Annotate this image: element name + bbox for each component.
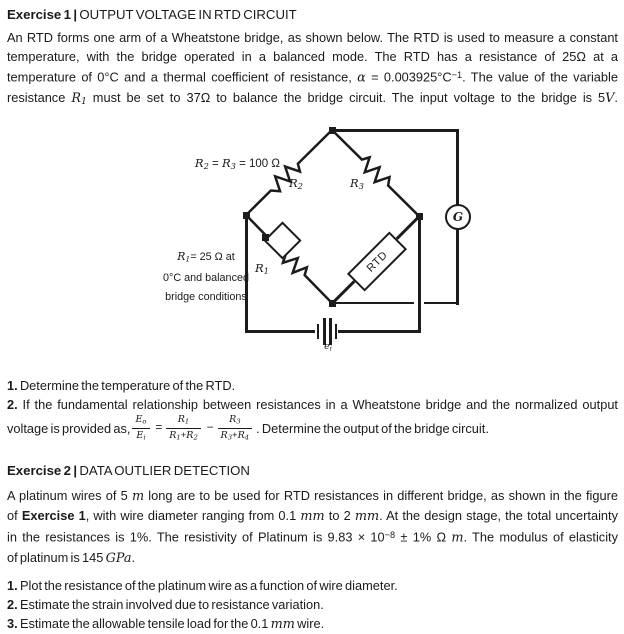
text-run: −8 <box>385 530 396 540</box>
junction-dot-left <box>243 212 250 219</box>
text-run: m <box>451 531 463 546</box>
text-run: A platinum wires of 5 <box>7 488 132 503</box>
wire-bottom-to-galvanometer-left <box>332 302 414 305</box>
text-run: . <box>132 550 136 565</box>
text-run: 2. <box>7 597 18 612</box>
text-run: GPa <box>106 551 132 566</box>
text-line: An RTD forms one arm of a Wheatstone bri… <box>7 28 618 47</box>
text-line: of Exercise 1, with wire diameter rangin… <box>7 506 618 526</box>
text-run: 4 <box>245 433 249 441</box>
text-run: OUTPUT VOLTAGE IN RTD CIRCUIT <box>79 7 296 22</box>
text-run: Determine the temperature of the RTD. <box>18 378 235 393</box>
label-battery-ei: ei <box>317 341 339 353</box>
formula-prefix-text: voltage is provided as, <box>7 419 130 438</box>
text-run: R <box>350 176 359 190</box>
text-line: 2. Estimate the strain involved due to r… <box>7 595 618 614</box>
label-r3: R3 <box>350 176 364 191</box>
equals-sign: = <box>156 419 163 438</box>
text-run: mm <box>300 509 324 524</box>
fraction-r3: R3 R3+R4 <box>218 414 253 441</box>
resistor-zigzag-icon <box>239 123 339 222</box>
formula-suffix-text: . Determine the output of the bridge cir… <box>256 419 489 438</box>
junction-dot-top <box>329 127 336 134</box>
text-line: resistance R1 must be set to 37Ω to bala… <box>7 88 618 111</box>
fraction-numerator: Eo <box>132 414 149 428</box>
text-run: bridge conditions <box>165 291 247 303</box>
fraction-denominator: Ei <box>132 429 149 442</box>
document-page: Exercise 1 | OUTPUT VOLTAGE IN RTD CIRCU… <box>0 0 624 631</box>
fraction-r1: R1 R1+R2 <box>166 414 201 441</box>
text-run: 3 <box>236 418 240 426</box>
text-run: . The value of the variable <box>462 70 618 85</box>
text-run: −1 <box>452 70 463 80</box>
text-run: Estimate the allowable tensile load for … <box>18 616 271 631</box>
wire-battery-rail-left <box>245 330 315 333</box>
text-run: 1. <box>7 378 18 393</box>
text-run: R <box>238 430 245 441</box>
text-run: of <box>7 508 22 523</box>
text-run: 0°C and balanced <box>163 272 249 284</box>
text-run: o <box>142 418 146 426</box>
text-run: Estimate the strain involved due to resi… <box>18 597 324 612</box>
text-run: of platinum is 145 <box>7 550 106 565</box>
text-run: must be set to 37Ω to balance the bridge… <box>87 90 605 105</box>
text-run: . At the design stage, the total uncerta… <box>379 508 618 523</box>
text-run: 1. <box>7 578 18 593</box>
text-run: . Determine the output of the bridge cir… <box>256 421 489 436</box>
text-run: = 25 Ω at <box>190 251 234 263</box>
text-run: R <box>178 414 185 425</box>
text-run: = 100 Ω <box>236 158 280 170</box>
junction-dot-bottom <box>329 300 336 307</box>
resistor-arm-r3 <box>325 123 426 223</box>
wire-right-vertical <box>418 216 421 333</box>
text-run: wire. <box>295 616 324 631</box>
text-run: α <box>357 71 366 86</box>
text-run: long are to be used for RTD resistances … <box>144 488 618 503</box>
label-r2-r3-value: R2 = R3 = 100 Ω <box>148 156 280 171</box>
battery-plate <box>317 324 320 339</box>
wire-bottom-to-galvanometer-right <box>424 302 459 305</box>
exercise2-heading: Exercise 2 | DATA OUTLIER DETECTION <box>7 461 618 480</box>
text-run: = <box>209 158 222 170</box>
fraction-denominator: R1+R2 <box>166 429 201 442</box>
text-run: resistance <box>7 90 71 105</box>
text-line: temperature of 0°C and a thermal coeffic… <box>7 66 618 88</box>
rtd-box: RTD <box>347 231 407 291</box>
label-r1-note: R1= 25 Ω at0°C and balancedbridge condit… <box>146 247 266 307</box>
text-line: 3. Estimate the allowable tensile load f… <box>7 614 618 634</box>
resistor-zigzag-icon <box>325 123 426 223</box>
text-run: mm <box>271 617 295 632</box>
text-run: i <box>143 433 145 441</box>
wire-battery-rail-right <box>338 330 421 333</box>
exercise1-question-2-formula-line: voltage is provided as, Eo Ei = R1 R1+R2… <box>7 410 618 446</box>
text-run: 2 <box>298 181 303 191</box>
text-line: R1= 25 Ω at <box>146 247 266 269</box>
label-r2: R2 <box>289 176 303 191</box>
text-line: of platinum is 145 GPa. <box>7 548 618 568</box>
text-run: 3. <box>7 616 18 631</box>
fraction-numerator: R1 <box>166 414 201 428</box>
text-run: , with wire diameter ranging from 0.1 <box>86 508 301 523</box>
text-line: A platinum wires of 5 m long are to be u… <box>7 486 618 506</box>
text-run: . The modulus of elasticity <box>463 530 618 545</box>
text-run: m <box>132 489 144 504</box>
exercise1-heading: Exercise 1 | OUTPUT VOLTAGE IN RTD CIRCU… <box>7 5 618 24</box>
text-run: mm <box>355 509 379 524</box>
text-run: Exercise 1 | <box>7 7 79 22</box>
text-run: R <box>71 91 81 106</box>
text-run: 1 <box>185 418 189 426</box>
text-run: = 0.003925°C <box>366 70 452 85</box>
rtd-label: RTD <box>364 249 389 274</box>
battery-plate <box>335 324 338 339</box>
text-line: 1. Plot the resistance of the platinum w… <box>7 576 618 595</box>
text-run: ± 1% Ω <box>395 530 451 545</box>
fraction-denominator: R3+R4 <box>218 429 253 442</box>
junction-dot-right <box>416 213 423 220</box>
minus-sign: − <box>207 419 214 438</box>
text-line: 0°C and balanced <box>146 269 266 288</box>
text-run: temperature, with the bridge operated in… <box>7 49 618 64</box>
exercise2-questions: 1. Plot the resistance of the platinum w… <box>7 576 618 634</box>
text-run: voltage is provided as, <box>7 421 130 436</box>
text-run: temperature of 0°C and a thermal coeffic… <box>7 70 357 85</box>
junction-dot-variable-resistor <box>262 234 269 241</box>
galvanometer-label: G <box>453 210 463 224</box>
text-run: i <box>330 345 332 353</box>
text-line: bridge conditions <box>146 288 266 307</box>
text-run: 2 <box>193 433 197 441</box>
text-run: Exercise 2 | <box>7 463 79 478</box>
text-run: 3 <box>359 181 364 191</box>
galvanometer: G <box>445 204 471 230</box>
text-run: to 2 <box>325 508 355 523</box>
resistor-arm-r2 <box>239 123 339 222</box>
text-run: Exercise 1 <box>22 508 86 523</box>
text-line: in the resistances is 1%. The resistivit… <box>7 526 618 548</box>
fraction-eo-ei: Eo Ei <box>132 414 149 441</box>
text-run: R <box>221 430 228 441</box>
text-run: DATA OUTLIER DETECTION <box>79 463 250 478</box>
text-run: . <box>614 90 618 105</box>
text-run: Plot the resistance of the platinum wire… <box>18 578 398 593</box>
text-run: R <box>222 156 231 170</box>
exercise1-paragraph: An RTD forms one arm of a Wheatstone bri… <box>7 28 618 111</box>
text-line: temperature, with the bridge operated in… <box>7 47 618 66</box>
wheatstone-bridge-diagram: RTD G R2 = R3 = 100 Ω R2 R3 R1 R1= 25 Ω … <box>0 115 624 373</box>
text-run: in the resistances is 1%. The resistivit… <box>7 530 385 545</box>
exercise1-question-1: 1. Determine the temperature of the RTD. <box>7 376 618 395</box>
exercise2-paragraph: A platinum wires of 5 m long are to be u… <box>7 486 618 568</box>
text-run: R <box>195 156 204 170</box>
text-run: R <box>289 176 298 190</box>
wire-top-to-galvanometer <box>332 129 459 132</box>
fraction-numerator: R3 <box>218 414 253 428</box>
text-run: An RTD forms one arm of a Wheatstone bri… <box>7 30 618 45</box>
